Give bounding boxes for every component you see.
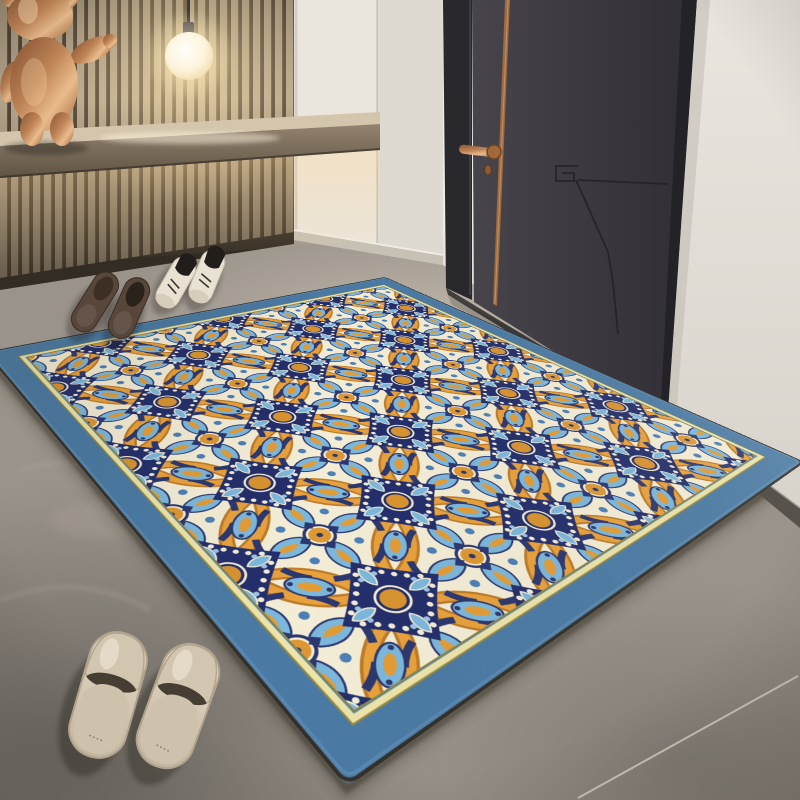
foreground-objects: [0, 0, 800, 800]
beige-slippers: [45, 625, 227, 795]
white-sneakers: [143, 242, 230, 322]
brown-loafers: [57, 267, 155, 356]
entryway-scene: [0, 0, 800, 800]
